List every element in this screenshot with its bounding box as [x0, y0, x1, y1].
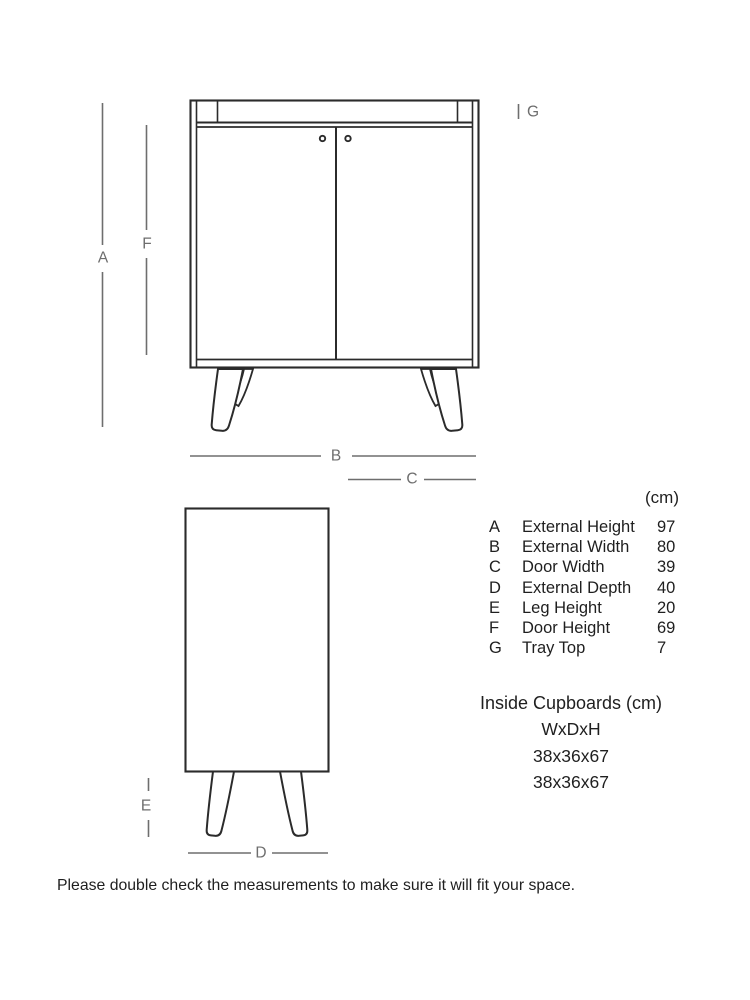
front-carcass-outline	[191, 101, 479, 368]
row-name: External Depth	[522, 578, 657, 598]
row-key: B	[489, 537, 522, 557]
dim-label-G: G	[527, 104, 539, 120]
dim-label-D: D	[255, 845, 266, 861]
inside-cupboards-title: Inside Cupboards (cm)	[421, 690, 721, 716]
dimensions-table: A External Height 97 B External Width 80…	[489, 517, 697, 658]
side-rear-leg	[280, 772, 307, 836]
dim-label-B: B	[331, 448, 341, 464]
measurement-footnote: Please double check the measurements to …	[57, 877, 575, 895]
row-key: D	[489, 578, 522, 598]
dim-label-F: F	[142, 236, 151, 252]
dim-label-A: A	[98, 250, 108, 266]
inside-cupboards-size: 38x36x67	[421, 769, 721, 795]
table-row: A External Height 97	[489, 517, 697, 537]
row-value: 7	[657, 638, 697, 658]
cabinet-dimension-diagram	[0, 0, 750, 1000]
table-row: C Door Width 39	[489, 557, 697, 577]
row-key: E	[489, 598, 522, 618]
table-row: G Tray Top 7	[489, 638, 697, 658]
row-name: External Width	[522, 537, 657, 557]
row-value: 20	[657, 598, 697, 618]
row-name: Leg Height	[522, 598, 657, 618]
table-row: F Door Height 69	[489, 618, 697, 638]
row-name: Tray Top	[522, 638, 657, 658]
row-name: Door Height	[522, 618, 657, 638]
row-value: 39	[657, 557, 697, 577]
row-key: A	[489, 517, 522, 537]
side-front-leg	[207, 772, 234, 836]
cabinet-side-view	[186, 509, 329, 836]
dimension-diagram-page: A F G B C D E (cm) A External Height 97 …	[0, 0, 750, 1000]
dim-label-C: C	[406, 471, 417, 487]
cabinet-front-view	[191, 101, 479, 431]
inside-cupboards-block: Inside Cupboards (cm) WxDxH 38x36x67 38x…	[421, 690, 721, 796]
row-key: F	[489, 618, 522, 638]
inside-cupboards-size: 38x36x67	[421, 743, 721, 769]
side-carcass-outline	[186, 509, 329, 772]
row-key: C	[489, 557, 522, 577]
dim-label-E: E	[141, 798, 151, 814]
table-row: D External Depth 40	[489, 578, 697, 598]
inside-cupboards-format: WxDxH	[421, 716, 721, 742]
unit-header: (cm)	[645, 488, 679, 508]
table-row: B External Width 80	[489, 537, 697, 557]
row-value: 69	[657, 618, 697, 638]
row-value: 97	[657, 517, 697, 537]
table-row: E Leg Height 20	[489, 598, 697, 618]
row-value: 40	[657, 578, 697, 598]
row-value: 80	[657, 537, 697, 557]
row-name: Door Width	[522, 557, 657, 577]
row-key: G	[489, 638, 522, 658]
row-name: External Height	[522, 517, 657, 537]
